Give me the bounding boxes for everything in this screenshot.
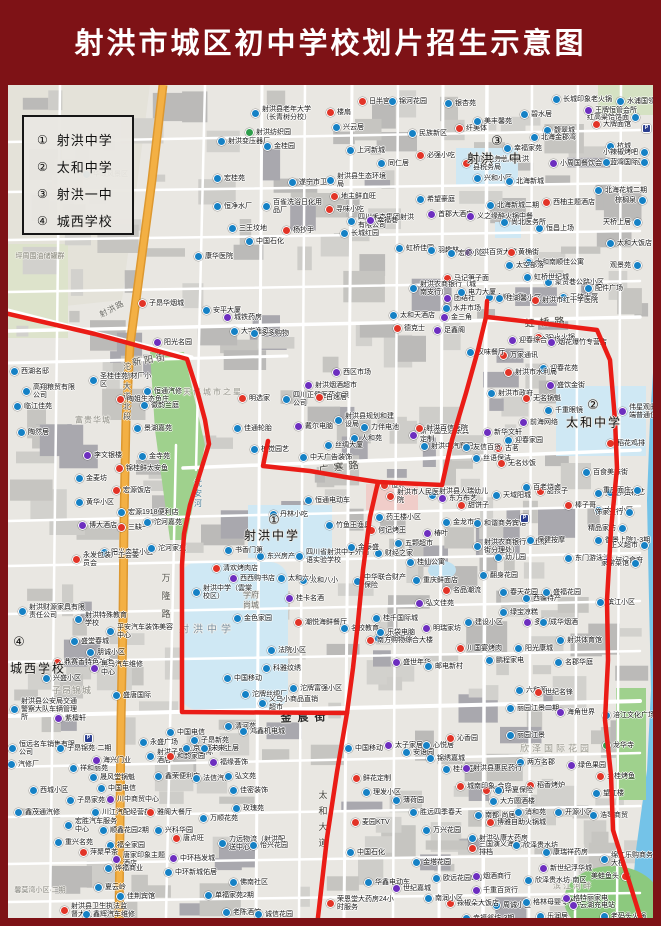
map-area: 新阳街射洪路沱牌大道北段广寒路虹桥路金宸街太和大道万隆路武安河天亿城市之星富贵华… bbox=[8, 85, 653, 918]
school-name-label: 城西学校 bbox=[10, 660, 66, 677]
school-number: ② bbox=[587, 397, 599, 413]
school-name-label: 射洪中学 bbox=[244, 527, 300, 544]
legend-num-2: ② bbox=[37, 160, 48, 174]
school-number: ④ bbox=[13, 634, 25, 650]
legend-item-3: ③ 射洪一中 bbox=[37, 180, 132, 207]
legend-label-3: 射洪一中 bbox=[57, 184, 113, 203]
legend-num-1: ① bbox=[37, 133, 48, 147]
legend-item-2: ② 太和中学 bbox=[37, 153, 132, 180]
map-poster: 射洪市城区初中学校划片招生示意图 新阳街射洪路沱 bbox=[0, 0, 661, 926]
legend-item-1: ① 射洪中学 bbox=[37, 126, 132, 153]
school-name-label: 射洪一中 bbox=[467, 150, 523, 167]
legend-num-3: ③ bbox=[37, 187, 48, 201]
legend-label-1: 射洪中学 bbox=[57, 130, 113, 149]
legend-label-4: 城西学校 bbox=[57, 211, 113, 230]
map-legend: ① 射洪中学 ② 太和中学 ③ 射洪一中 ④ 城西学校 bbox=[22, 115, 134, 235]
page-title: 射洪市城区初中学校划片招生示意图 bbox=[0, 20, 661, 62]
legend-label-2: 太和中学 bbox=[57, 157, 113, 176]
legend-num-4: ④ bbox=[37, 214, 48, 228]
school-name-label: 太和中学 bbox=[566, 414, 622, 431]
legend-item-4: ④ 城西学校 bbox=[37, 207, 132, 234]
school-number: ③ bbox=[491, 133, 503, 149]
